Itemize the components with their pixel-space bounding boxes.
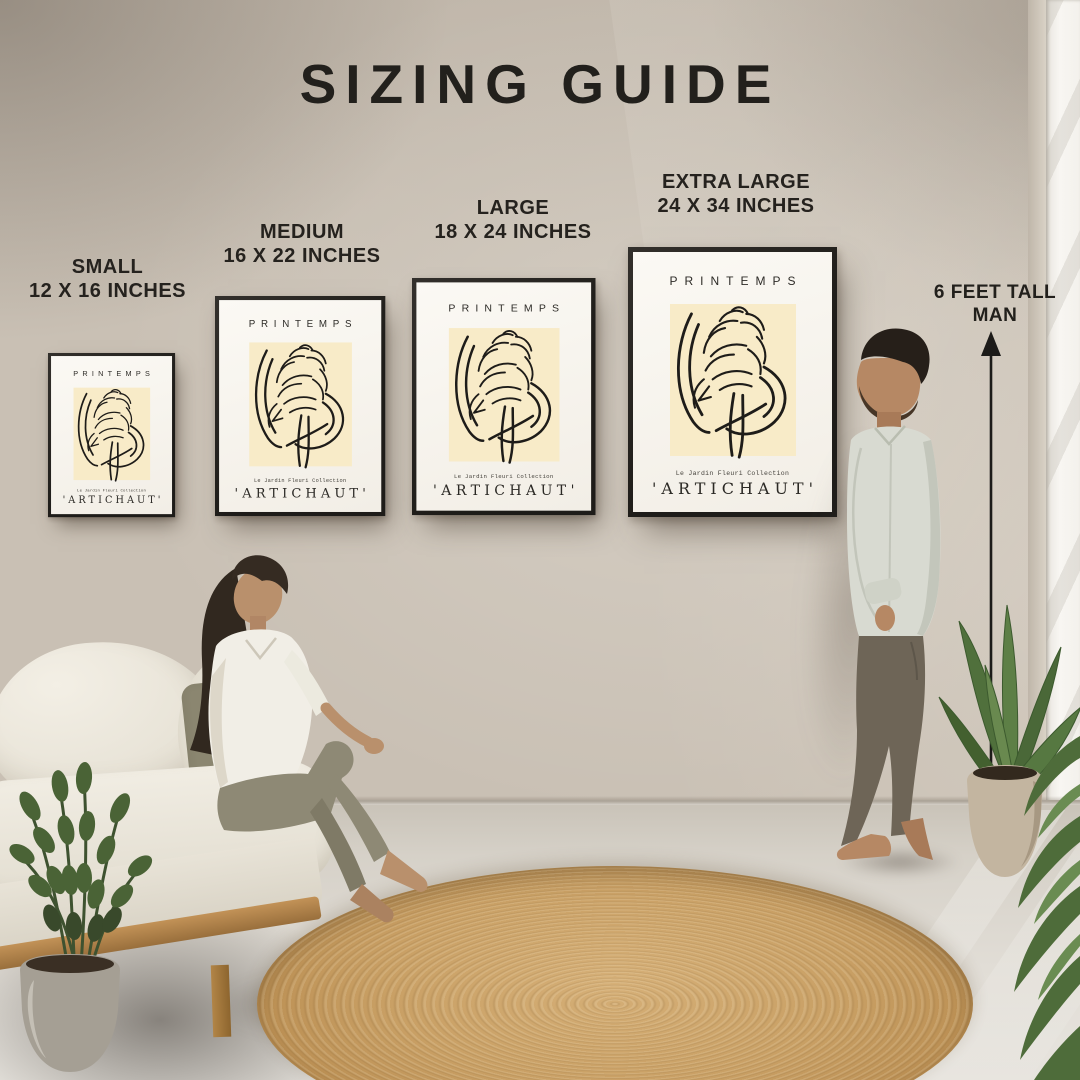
corner-palm-fronds — [1002, 696, 1080, 1080]
poster-header: PRINTEMPS — [633, 274, 832, 288]
size-name: LARGE — [407, 196, 619, 220]
poster-large-18x24: PRINTEMPS — [412, 278, 621, 548]
artichoke-line-drawing-icon — [430, 323, 579, 471]
size-name: MEDIUM — [202, 220, 402, 244]
size-dimensions: 12 X 16 INCHES — [15, 279, 200, 303]
poster-paper: PRINTEMPS — [51, 356, 172, 514]
poster-collection-line: Le Jardin Fleuri Collection — [416, 474, 591, 480]
size-name: SMALL — [15, 255, 200, 279]
size-label-large: LARGE 18 X 24 INCHES — [407, 196, 619, 244]
sofa-leg — [211, 965, 232, 1038]
plant-pot-soil — [26, 955, 114, 973]
artichoke-line-drawing-icon — [648, 298, 818, 466]
poster-medium-16x22: PRINTEMPS — [215, 296, 424, 566]
size-label-medium: MEDIUM 16 X 22 INCHES — [202, 220, 402, 268]
size-label-extra-large: EXTRA LARGE 24 X 34 INCHES — [620, 170, 852, 218]
man-trousers — [841, 636, 925, 846]
artichoke-line-drawing-icon — [60, 384, 163, 486]
height-reference-label: 6 FEET TALL MAN — [920, 281, 1070, 327]
man-hand — [875, 605, 895, 631]
poster-frame: PRINTEMPS — [215, 296, 385, 516]
poster-paper: PRINTEMPS — [416, 282, 591, 510]
arrow-up-icon — [981, 331, 1001, 356]
woman-forearm — [326, 708, 368, 742]
poster-paper: PRINTEMPS — [219, 300, 381, 512]
woman-foot — [380, 850, 427, 892]
poster-title: 'ARTICHAUT' — [219, 485, 381, 500]
size-dimensions: 18 X 24 INCHES — [407, 220, 619, 244]
woman-foot-back — [350, 884, 394, 922]
poster-header: PRINTEMPS — [416, 302, 591, 314]
page-title: SIZING GUIDE — [0, 52, 1080, 116]
sizing-guide-scene: SIZING GUIDE SMALL 12 X 16 INCHES MEDIUM… — [0, 0, 1080, 1080]
plant-leaves — [6, 761, 156, 911]
poster-title: 'ARTICHAUT' — [416, 482, 591, 499]
poster-title: 'ARTICHAUT' — [51, 494, 172, 506]
size-dimensions: 24 X 34 INCHES — [620, 194, 852, 218]
poster-collection-line: Le Jardin Fleuri Collection — [51, 489, 172, 493]
poster-collection-line: Le Jardin Fleuri Collection — [219, 478, 381, 484]
potted-plant-left — [0, 680, 200, 1080]
size-label-small: SMALL 12 X 16 INCHES — [15, 255, 200, 303]
size-dimensions: 16 X 22 INCHES — [202, 244, 402, 268]
poster-header: PRINTEMPS — [51, 369, 172, 378]
size-name: EXTRA LARGE — [620, 170, 852, 194]
poster-frame: PRINTEMPS — [48, 353, 175, 517]
woman-hand — [364, 738, 384, 754]
poster-frame: PRINTEMPS — [412, 278, 596, 515]
poster-header: PRINTEMPS — [219, 318, 381, 329]
artichoke-line-drawing-icon — [231, 338, 370, 475]
